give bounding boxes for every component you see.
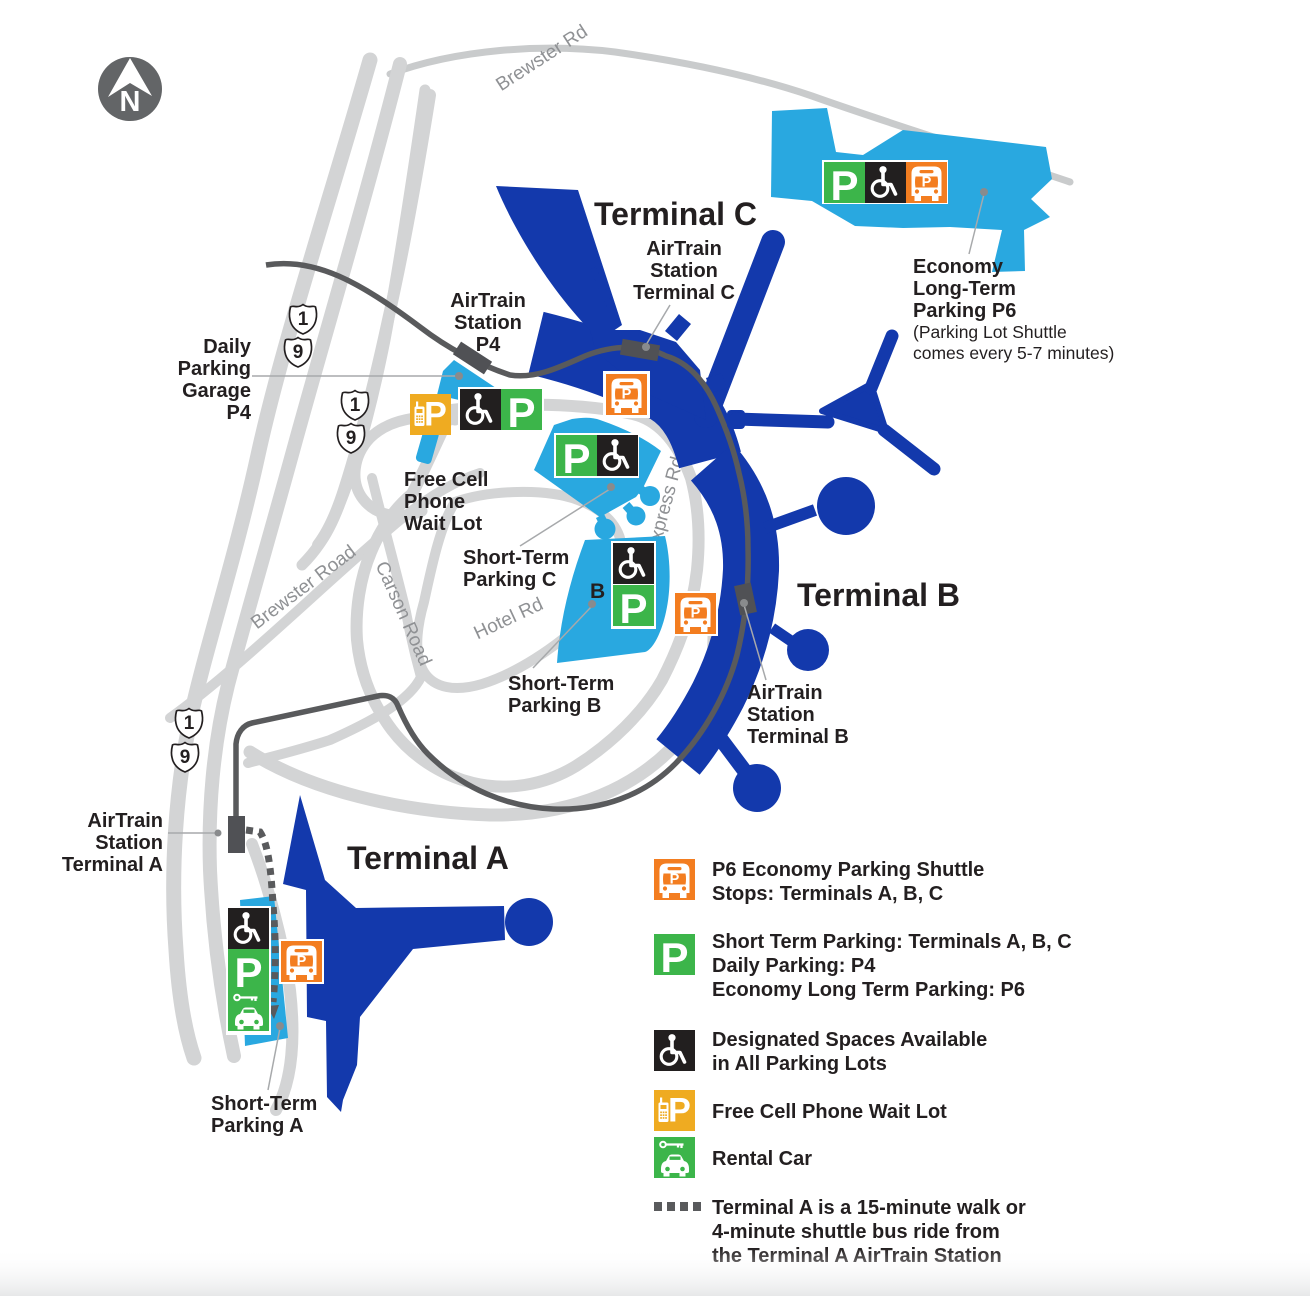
svg-text:9: 9 <box>293 342 304 363</box>
svg-text:9: 9 <box>346 428 357 449</box>
svg-text:1: 1 <box>350 395 361 416</box>
svg-text:Rental Car: Rental Car <box>712 1148 812 1170</box>
svg-text:1: 1 <box>184 713 195 734</box>
svg-text:Short-TermParking B: Short-TermParking B <box>508 673 614 717</box>
svg-text:EconomyLong-TermParking P6: EconomyLong-TermParking P6 <box>913 256 1016 322</box>
svg-text:B: B <box>590 580 605 603</box>
svg-text:Short-TermParking A: Short-TermParking A <box>211 1093 317 1137</box>
svg-text:Free Cell Phone Wait Lot: Free Cell Phone Wait Lot <box>712 1101 947 1123</box>
svg-text:9: 9 <box>180 747 191 768</box>
svg-text:Terminal C: Terminal C <box>594 196 757 232</box>
svg-text:N: N <box>120 86 141 118</box>
svg-text:1: 1 <box>298 309 309 330</box>
svg-text:Short-TermParking C: Short-TermParking C <box>463 547 569 591</box>
svg-text:Terminal B: Terminal B <box>797 577 960 613</box>
svg-text:Terminal A: Terminal A <box>347 840 509 876</box>
